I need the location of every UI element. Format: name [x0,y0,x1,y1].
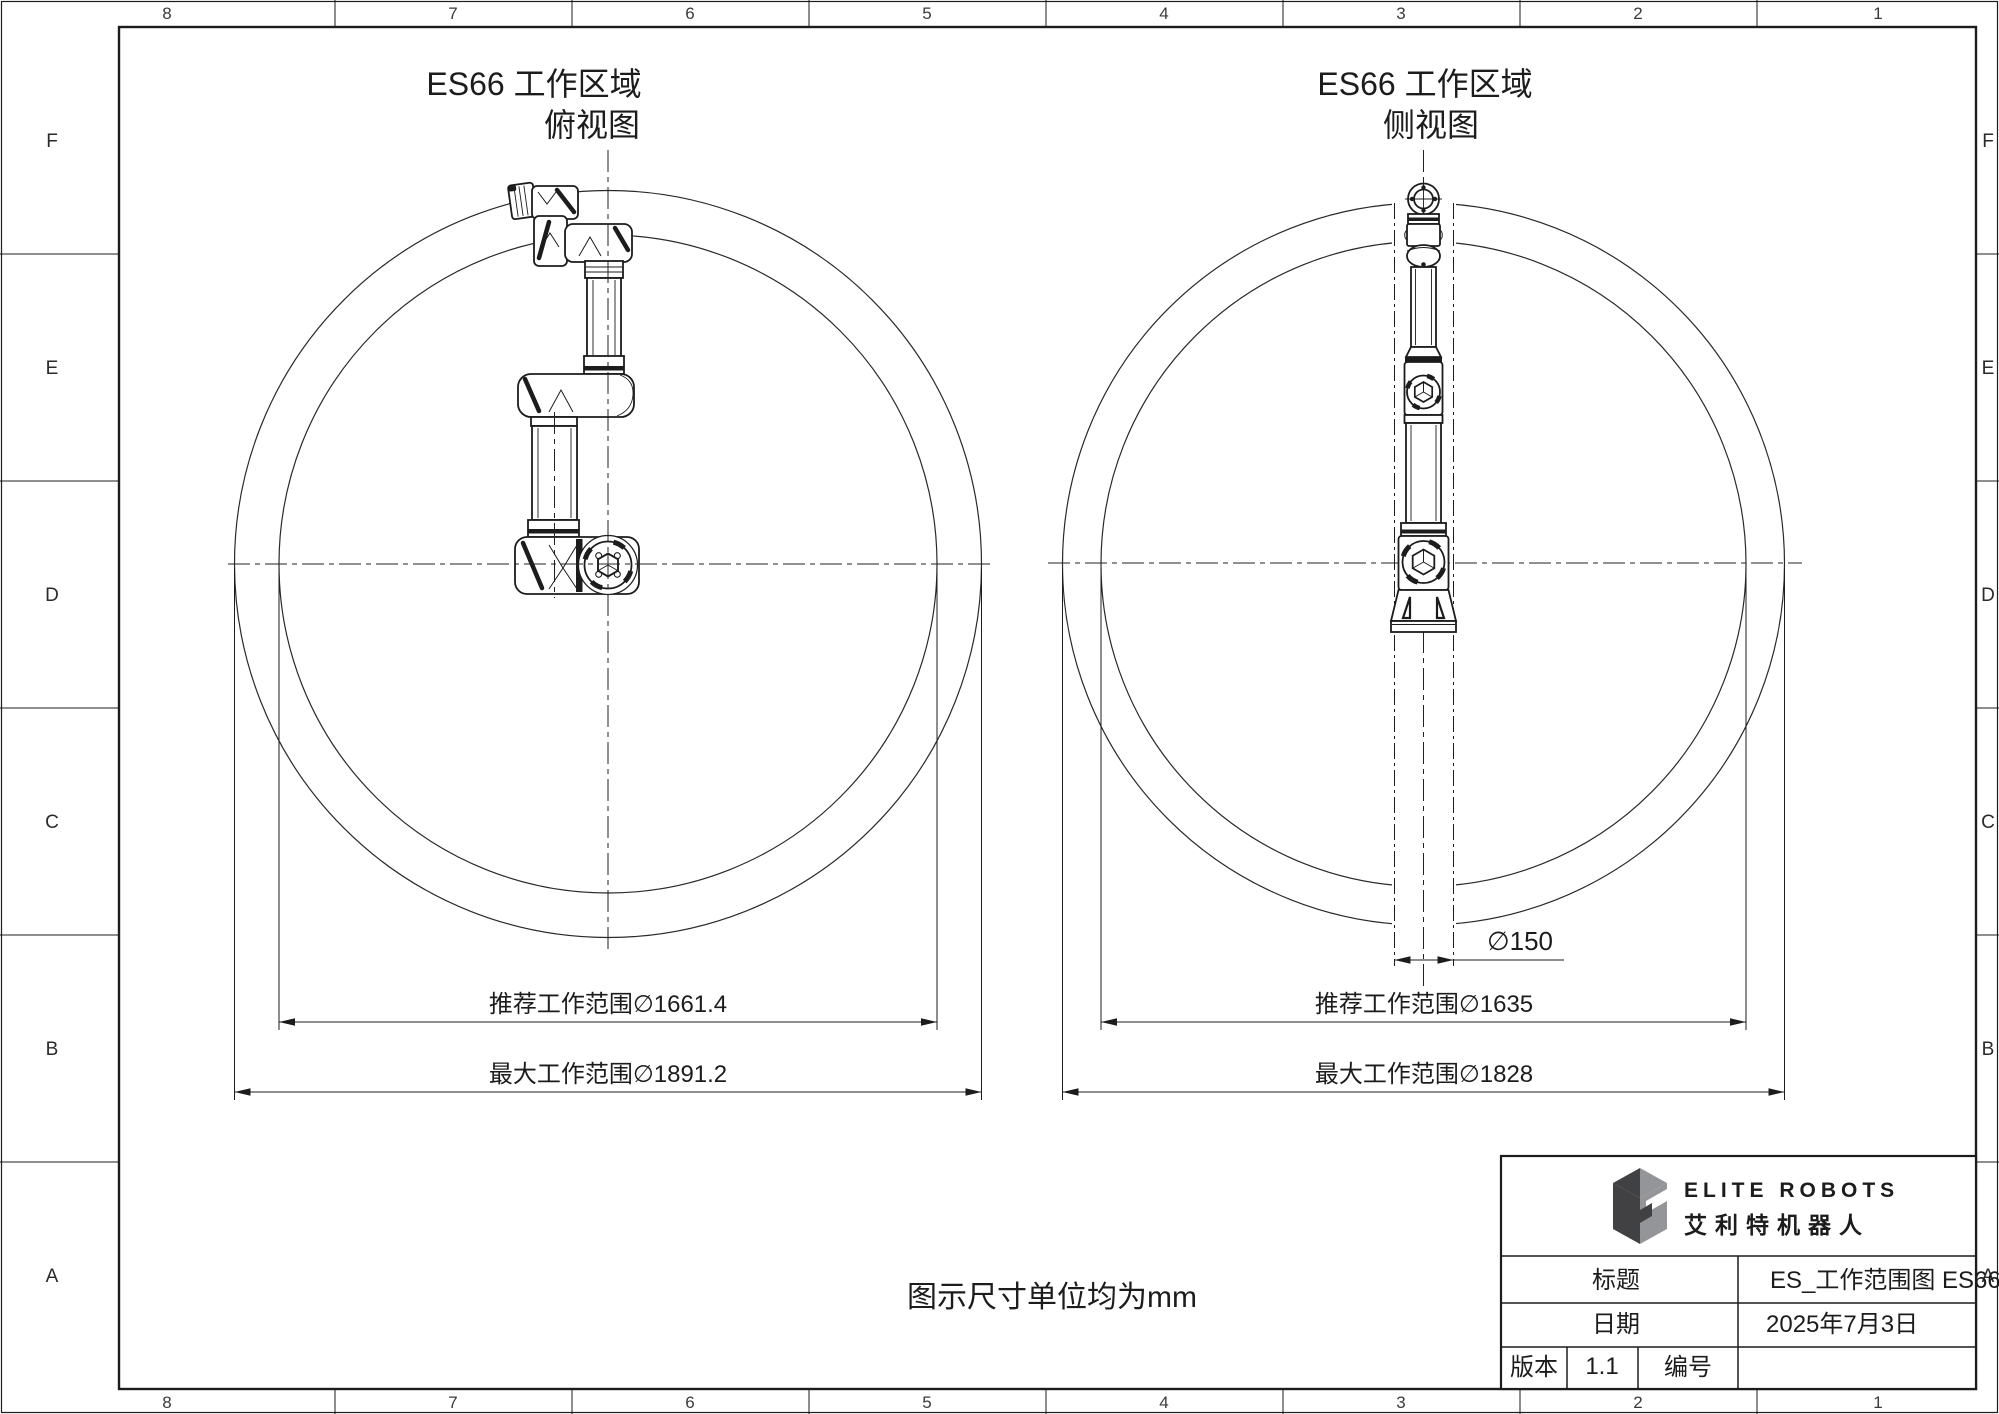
zone-label: 3 [1396,4,1405,23]
zone-label: 1 [1873,4,1882,23]
zone-label: 6 [685,4,694,23]
zone-label: 8 [162,1393,171,1412]
top-view: ES66 工作区域 俯视图 [228,66,990,1100]
title-label: 标题 [1592,1267,1640,1294]
top-view-title: ES66 工作区域 [426,66,641,102]
dim-max-range: 最大工作范围∅1891.2 [489,1061,727,1088]
zone-label: 6 [685,1393,694,1412]
zone-label: C [1981,812,1995,833]
dim-recommended-range: 推荐工作范围∅1635 [1315,991,1533,1018]
zone-label: B [46,1039,59,1060]
zone-label: F [46,131,58,152]
zone-label: F [1982,131,1994,152]
zone-label: D [45,585,59,606]
side-view-title: ES66 工作区域 [1317,66,1532,102]
elite-robots-logo-icon [1613,1168,1667,1244]
zone-label: D [1981,585,1995,606]
version-value: 1.1 [1585,1353,1618,1380]
date-value: 2025年7月3日 [1766,1311,1918,1338]
version-label: 版本 [1510,1354,1558,1381]
engineering-drawing-sheet: 8 7 6 5 4 3 2 1 8 7 6 5 4 3 2 1 F E D C … [0,0,1999,1414]
zone-label: 4 [1159,1393,1168,1412]
zone-label: 7 [448,4,457,23]
brand-name-en: ELITE ROBOTS [1684,1179,1899,1202]
dim-column-diameter: ∅150 [1487,926,1553,956]
zone-label: C [45,812,59,833]
top-view-subtitle: 俯视图 [544,107,640,143]
zone-label: 1 [1873,1393,1882,1412]
zone-label: E [46,358,59,379]
zone-label: 2 [1633,1393,1642,1412]
title-block: ELITE ROBOTS 艾利特机器人 标题 ES_工作范围图 ES66 日期 … [1501,1156,1999,1389]
zone-label: 5 [922,4,931,23]
brand-name-cn: 艾利特机器人 [1684,1212,1870,1238]
zone-label: 5 [922,1393,931,1412]
side-view-subtitle: 侧视图 [1383,107,1479,143]
title-value: ES_工作范围图 ES66 [1770,1267,1999,1294]
date-label: 日期 [1592,1311,1640,1338]
zone-label: A [46,1266,59,1287]
number-label: 编号 [1664,1354,1712,1381]
zone-label: E [1982,358,1995,379]
zone-label: B [1982,1039,1995,1060]
zone-label: 2 [1633,4,1642,23]
side-view: ES66 工作区域 侧视图 [1048,66,1802,1100]
robot-arm-top-view [508,182,639,594]
dim-max-range: 最大工作范围∅1828 [1315,1061,1533,1088]
units-note: 图示尺寸单位均为mm [907,1281,1197,1314]
zone-label: 8 [162,4,171,23]
zone-label: 7 [448,1393,457,1412]
zone-label: 4 [1159,4,1168,23]
dim-recommended-range: 推荐工作范围∅1661.4 [489,991,727,1018]
zone-label: 3 [1396,1393,1405,1412]
